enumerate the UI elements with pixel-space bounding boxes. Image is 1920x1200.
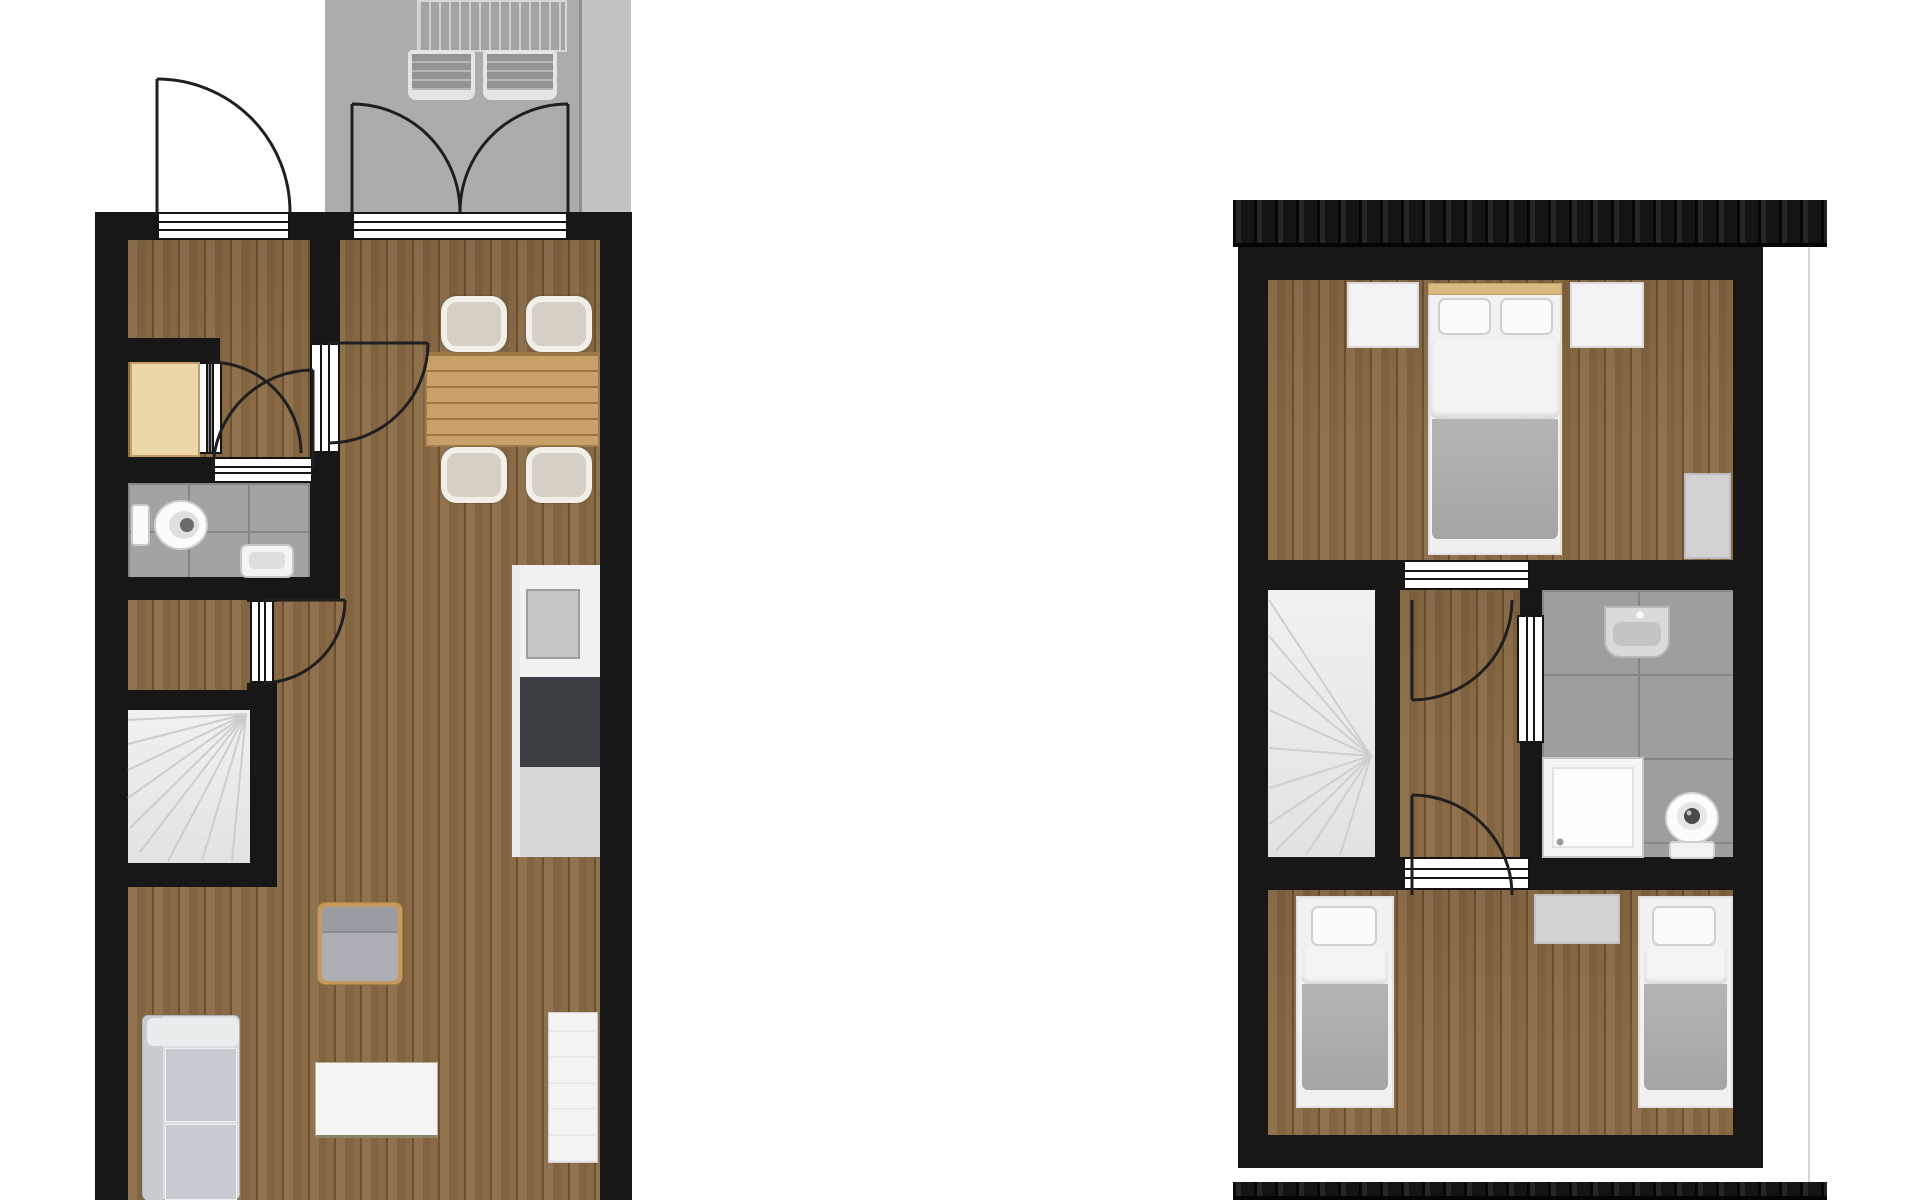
bedroom-2-door-arc <box>1412 795 1512 895</box>
washbasin-faucet <box>1637 612 1644 619</box>
vector-overlay <box>0 0 1920 1200</box>
floor-plan-canvas <box>0 0 1920 1200</box>
toilet-drain <box>1684 808 1700 824</box>
stair-treads-ground <box>128 714 246 861</box>
front-entry-door-arc <box>157 79 290 212</box>
door-swing-arcs <box>157 79 1512 895</box>
hand-basin-bowl <box>249 552 285 569</box>
toilet-tank <box>1670 842 1714 858</box>
terrace-door-arc <box>352 104 460 212</box>
bedroom-1-door-arc <box>1412 600 1512 700</box>
shower-tray-inner <box>1553 768 1633 847</box>
toilet-tank <box>132 505 149 545</box>
hall-to-living-door-arc <box>328 343 428 443</box>
wardrobe-nook-door-arc <box>210 362 301 453</box>
toilet-drain-highlight <box>1687 811 1692 816</box>
wc-door-arc <box>213 370 313 470</box>
wc-fixtures <box>132 501 293 577</box>
bathroom-fixtures <box>1543 607 1718 858</box>
stair-hall-door-arc <box>262 600 345 683</box>
terrace-door-arc <box>460 104 568 212</box>
toilet-drain <box>180 518 194 532</box>
shower-drain <box>1557 839 1564 846</box>
stair-treads-upper <box>1269 600 1371 855</box>
washbasin-bowl <box>1613 622 1661 646</box>
